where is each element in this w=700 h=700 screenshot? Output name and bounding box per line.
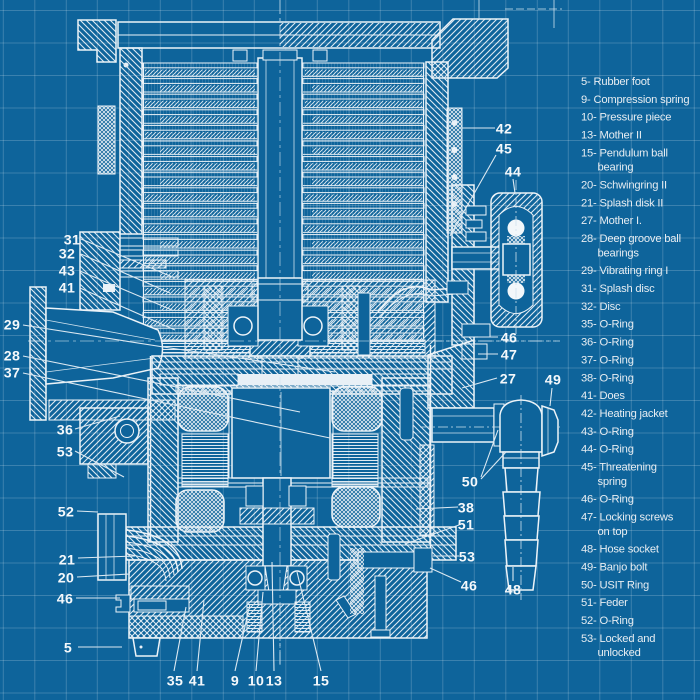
svg-text:32: 32 xyxy=(59,247,76,263)
svg-text:47- Locking screws: 47- Locking screws xyxy=(581,512,674,524)
svg-text:13: 13 xyxy=(266,674,283,690)
svg-text:53- Locked and: 53- Locked and xyxy=(581,633,655,645)
svg-text:28: 28 xyxy=(4,349,21,365)
svg-text:41- Does: 41- Does xyxy=(581,390,625,402)
svg-text:49- Banjo bolt: 49- Banjo bolt xyxy=(581,562,648,574)
svg-text:43: 43 xyxy=(59,264,76,280)
svg-text:52: 52 xyxy=(58,505,75,521)
svg-text:15: 15 xyxy=(313,674,330,690)
svg-text:15- Pendulum ball: 15- Pendulum ball xyxy=(581,147,668,159)
svg-text:on top: on top xyxy=(598,526,628,538)
svg-text:41: 41 xyxy=(189,674,206,690)
svg-text:31- Splash disc: 31- Splash disc xyxy=(581,283,655,295)
svg-text:5: 5 xyxy=(64,641,72,657)
svg-text:45- Threatening: 45- Threatening xyxy=(581,462,657,474)
svg-text:51: 51 xyxy=(458,518,475,534)
svg-text:46: 46 xyxy=(57,592,74,608)
svg-text:10- Pressure piece: 10- Pressure piece xyxy=(581,112,671,124)
svg-text:50- USIT Ring: 50- USIT Ring xyxy=(581,579,649,591)
svg-text:29: 29 xyxy=(4,318,21,334)
svg-text:9- Compression spring: 9- Compression spring xyxy=(581,94,689,106)
svg-text:5- Rubber foot: 5- Rubber foot xyxy=(581,76,651,88)
svg-text:35: 35 xyxy=(167,674,184,690)
svg-text:spring: spring xyxy=(598,476,627,488)
svg-text:46: 46 xyxy=(461,579,478,595)
svg-text:10: 10 xyxy=(248,674,265,690)
svg-text:36- O-Ring: 36- O-Ring xyxy=(581,337,634,349)
svg-text:bearings: bearings xyxy=(598,247,640,259)
svg-text:44: 44 xyxy=(505,165,522,181)
svg-text:32- Disc: 32- Disc xyxy=(581,301,621,313)
svg-text:37: 37 xyxy=(4,366,21,382)
svg-text:38: 38 xyxy=(458,501,475,517)
svg-text:46: 46 xyxy=(501,331,518,347)
svg-text:28- Deep groove ball: 28- Deep groove ball xyxy=(581,233,681,245)
svg-text:42- Heating jacket: 42- Heating jacket xyxy=(581,408,669,420)
svg-text:37- O-Ring: 37- O-Ring xyxy=(581,354,634,366)
svg-text:52- O-Ring: 52- O-Ring xyxy=(581,615,634,627)
svg-text:48: 48 xyxy=(505,583,522,599)
svg-text:42: 42 xyxy=(496,122,513,138)
svg-text:20- Schwingring II: 20- Schwingring II xyxy=(581,179,667,191)
svg-text:49: 49 xyxy=(545,373,562,389)
svg-text:51- Feder: 51- Feder xyxy=(581,597,628,609)
svg-text:35- O-Ring: 35- O-Ring xyxy=(581,319,634,331)
svg-text:43- O-Ring: 43- O-Ring xyxy=(581,426,634,438)
svg-text:53: 53 xyxy=(459,550,476,566)
svg-text:46- O-Ring: 46- O-Ring xyxy=(581,494,634,506)
svg-text:27- Mother I.: 27- Mother I. xyxy=(581,215,642,227)
svg-text:20: 20 xyxy=(58,571,75,587)
svg-text:50: 50 xyxy=(462,475,479,491)
svg-text:47: 47 xyxy=(501,348,518,364)
svg-text:38- O-Ring: 38- O-Ring xyxy=(581,372,634,384)
svg-text:21- Splash disk II: 21- Splash disk II xyxy=(581,197,663,209)
svg-text:21: 21 xyxy=(59,553,76,569)
svg-text:41: 41 xyxy=(59,281,76,297)
svg-text:29- Vibrating ring I: 29- Vibrating ring I xyxy=(581,265,668,277)
svg-text:13- Mother II: 13- Mother II xyxy=(581,129,642,141)
svg-text:45: 45 xyxy=(496,142,513,158)
svg-text:36: 36 xyxy=(57,423,74,439)
svg-text:unlocked: unlocked xyxy=(598,647,641,659)
svg-text:53: 53 xyxy=(57,445,74,461)
svg-text:44- O-Ring: 44- O-Ring xyxy=(581,444,634,456)
svg-text:9: 9 xyxy=(231,674,239,690)
svg-text:bearing: bearing xyxy=(598,162,634,174)
svg-text:27: 27 xyxy=(500,372,517,388)
svg-text:48- Hose socket: 48- Hose socket xyxy=(581,544,660,556)
